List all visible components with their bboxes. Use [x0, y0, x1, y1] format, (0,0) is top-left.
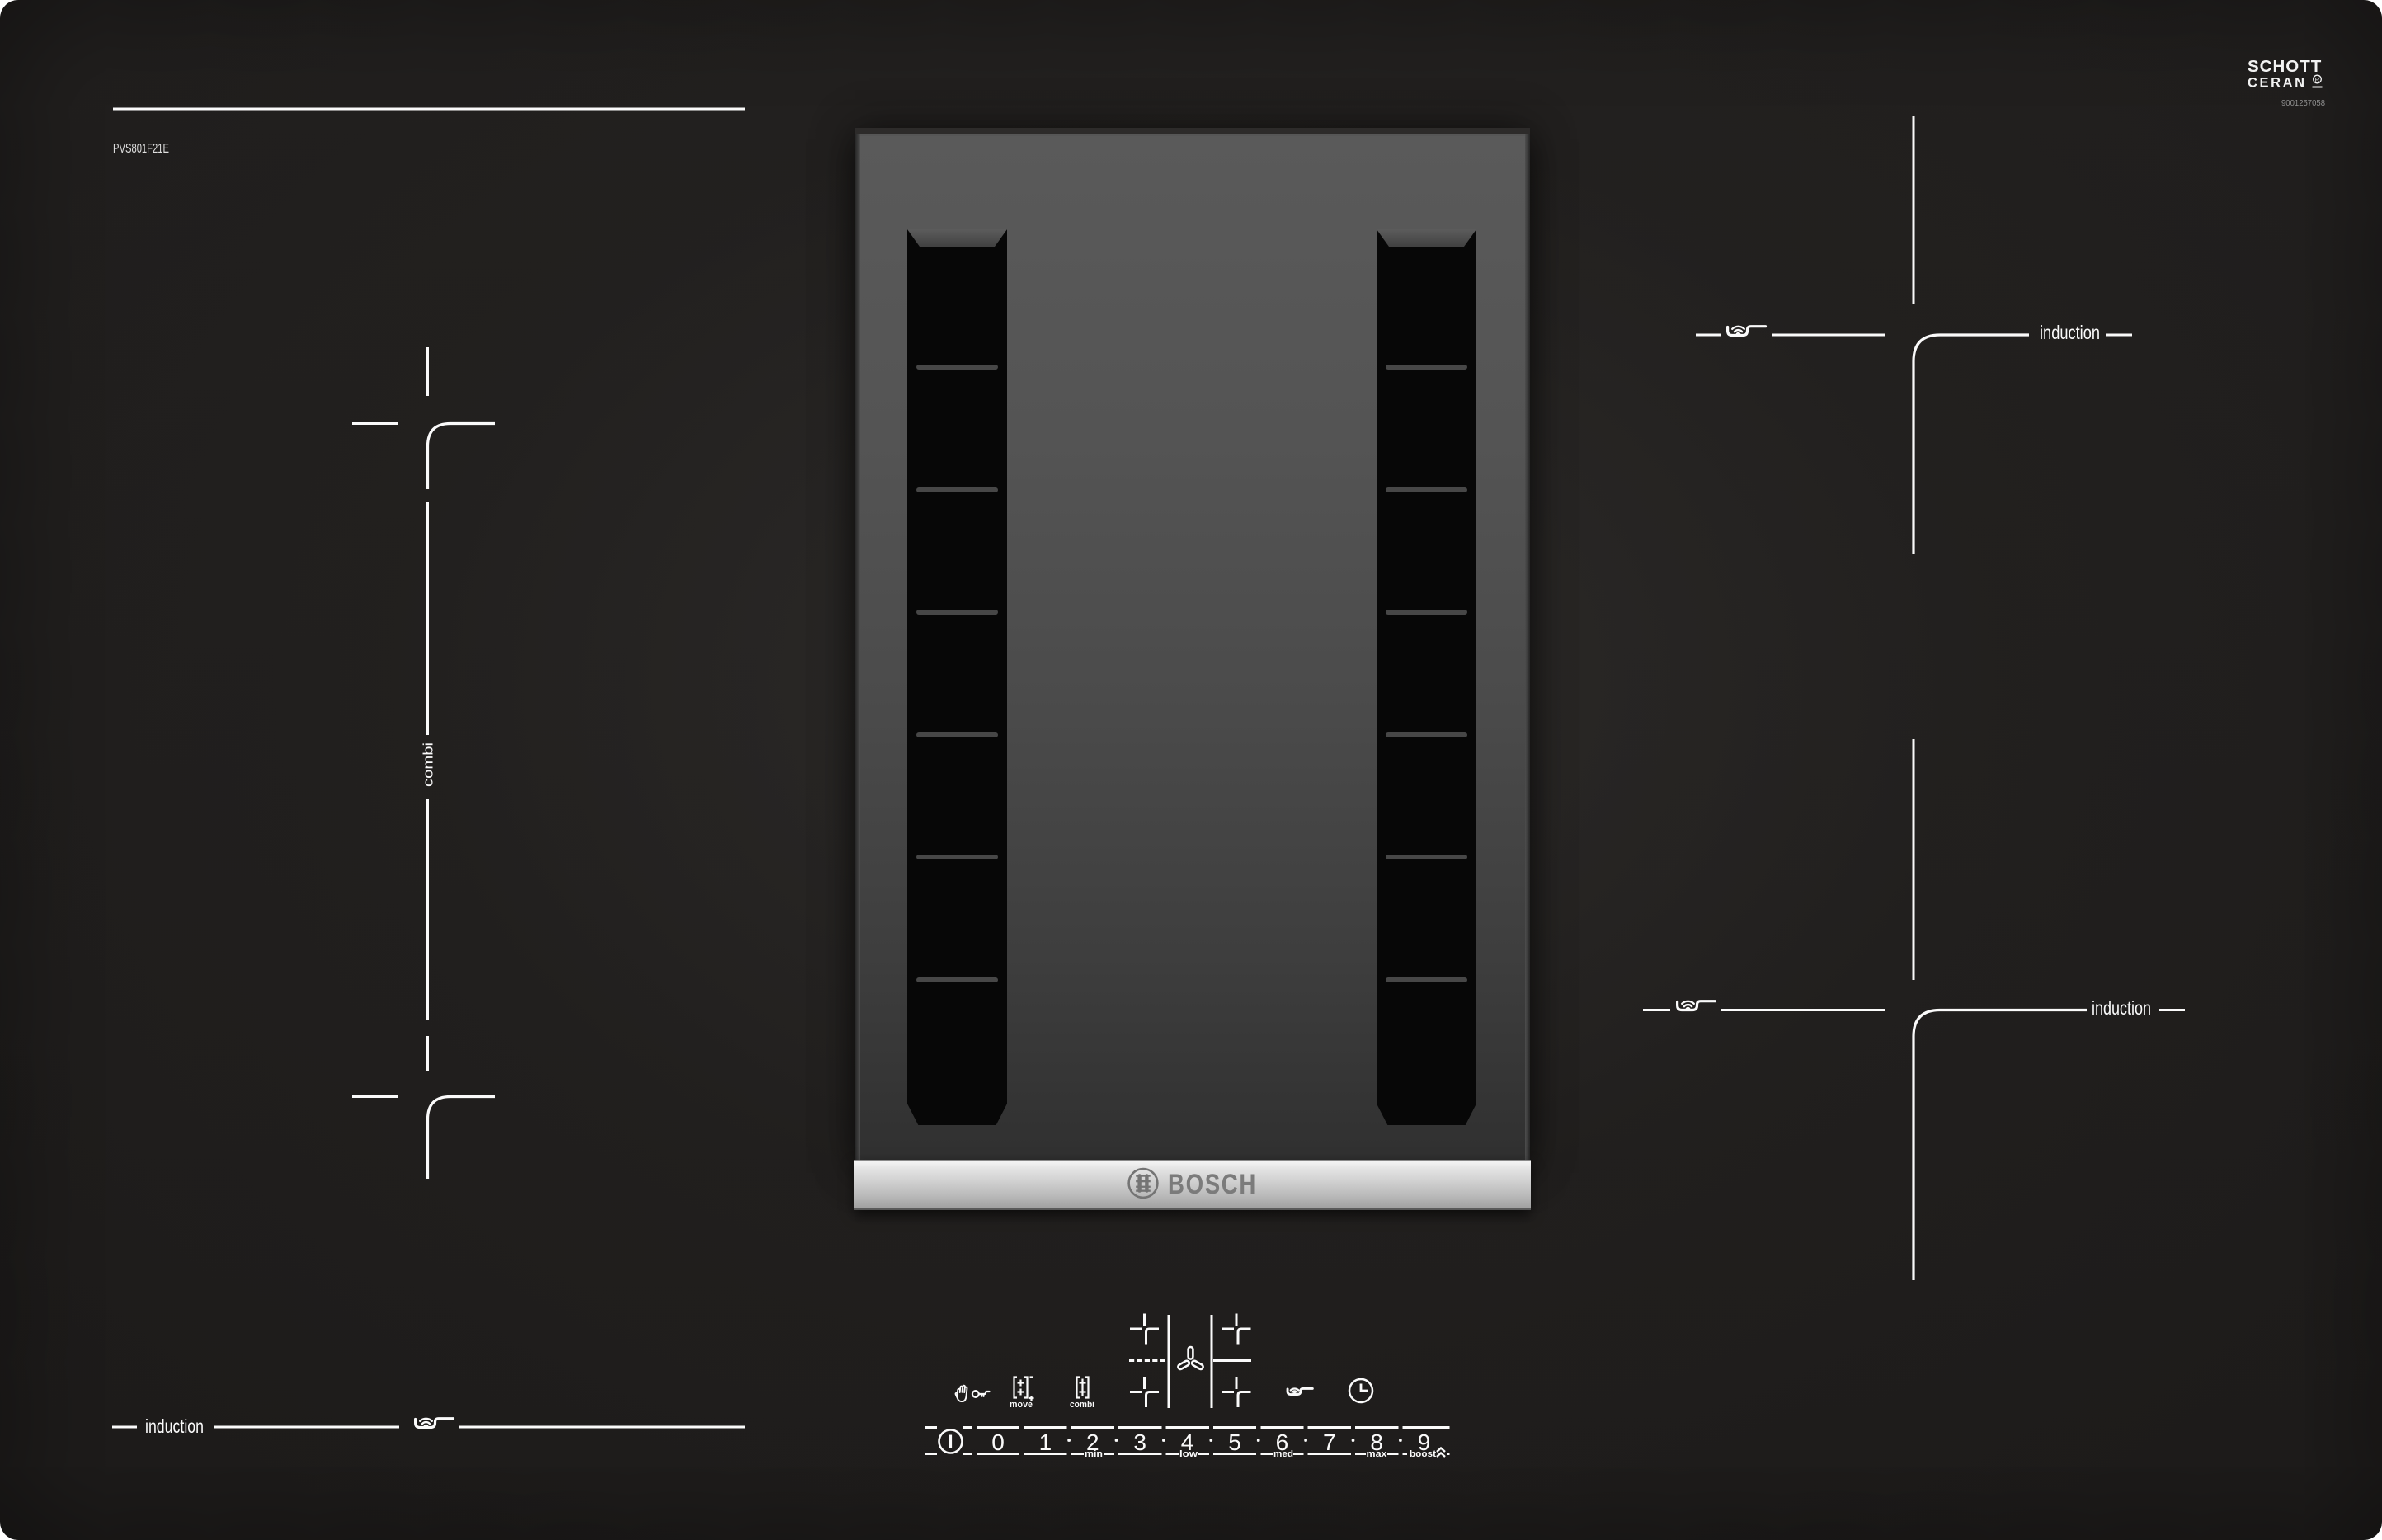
- svg-text:low: low: [1179, 1449, 1198, 1459]
- svg-text:3: 3: [1133, 1429, 1146, 1455]
- svg-text:max: max: [1367, 1449, 1388, 1459]
- svg-text:PVS801F21E: PVS801F21E: [113, 142, 169, 156]
- svg-text:combi: combi: [421, 742, 436, 787]
- svg-text:R: R: [2315, 76, 2320, 83]
- svg-text:combi: combi: [1070, 1400, 1094, 1410]
- svg-text:5: 5: [1228, 1429, 1241, 1455]
- svg-text:min: min: [1085, 1449, 1103, 1459]
- svg-text:SCHOTT: SCHOTT: [2248, 57, 2322, 76]
- svg-text:0: 0: [991, 1429, 1005, 1455]
- svg-text:7: 7: [1323, 1429, 1336, 1455]
- svg-text:induction: induction: [145, 1415, 204, 1437]
- svg-text:med: med: [1273, 1449, 1293, 1459]
- svg-text:induction: induction: [2040, 322, 2100, 343]
- svg-text:BOSCH: BOSCH: [1168, 1169, 1257, 1200]
- svg-text:move: move: [1010, 1400, 1033, 1410]
- svg-text:CERAN: CERAN: [2248, 76, 2307, 91]
- svg-text:boost: boost: [1410, 1449, 1436, 1459]
- svg-text:9001257058: 9001257058: [2281, 99, 2325, 108]
- svg-text:1: 1: [1039, 1429, 1052, 1455]
- svg-text:induction: induction: [2092, 997, 2151, 1019]
